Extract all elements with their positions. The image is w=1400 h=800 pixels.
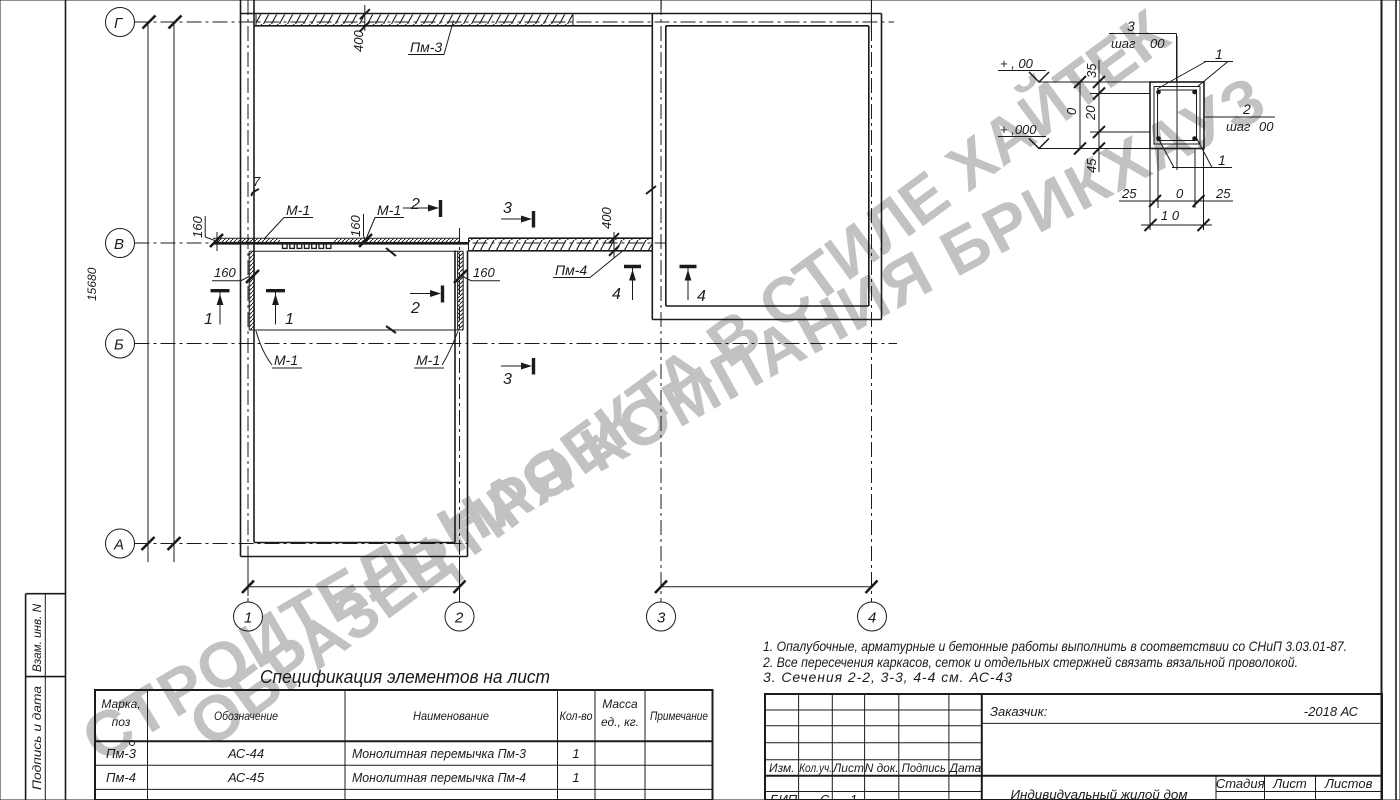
svg-text:Примечание: Примечание [650,709,708,723]
svg-text:Пм-3: Пм-3 [410,39,442,55]
svg-text:Кол.уч.: Кол.уч. [799,761,832,775]
svg-text:Стадия: Стадия [1216,776,1265,791]
svg-text:М-1: М-1 [274,352,298,368]
svg-text:160: 160 [348,215,363,237]
svg-text:4: 4 [868,610,876,627]
svg-text:400: 400 [351,30,366,52]
svg-text:Пм-3: Пм-3 [106,746,137,761]
svg-text:Наименование: Наименование [413,709,489,723]
svg-text:Монолитная перемычка Пм-3: Монолитная перемычка Пм-3 [352,746,527,761]
svg-text:0: 0 [1064,107,1079,115]
svg-text:Спецификация элементов на л: Спецификация элементов на лист [260,667,550,687]
svg-text:С: С [820,792,830,800]
svg-text:Лист: Лист [1272,776,1307,791]
svg-text:Г: Г [114,15,124,32]
svg-text:+ , 00: + , 00 [1000,56,1034,71]
svg-text:Кол-во: Кол-во [560,709,593,723]
svg-text:Монолитная перемычка Пм-4: Монолитная перемычка Пм-4 [352,770,526,785]
svg-text:В: В [114,236,124,253]
svg-text:-2018 АС: -2018 АС [1304,704,1359,719]
svg-text:1: 1 [850,792,857,800]
svg-text:25: 25 [1215,186,1231,201]
svg-text:Обозначение: Обозначение [214,709,278,723]
svg-text:Листов: Листов [1324,776,1373,791]
svg-text:Индивидуальный жилой дом: Индивидуальный жилой дом [1011,787,1188,800]
svg-text:Взам. инв. N: Взам. инв. N [30,604,44,672]
svg-text:Пм-4: Пм-4 [106,770,136,785]
svg-text:шаг: шаг [1226,119,1251,134]
svg-text:БИП: БИП [770,792,798,800]
svg-text:3: 3 [503,200,512,217]
svg-text:Пм-4: Пм-4 [555,262,587,278]
svg-text:Изм.: Изм. [769,761,795,775]
svg-text:1: 1 [1215,46,1223,62]
svg-text:Лист: Лист [832,761,864,775]
svg-text:3: 3 [1127,18,1135,34]
svg-text:25: 25 [1121,186,1137,201]
svg-text:Масса: Масса [602,697,638,711]
svg-text:3: 3 [503,371,512,388]
svg-text:2: 2 [410,196,420,213]
svg-text:Заказчик:: Заказчик: [990,704,1048,719]
svg-text:4: 4 [697,288,706,305]
svg-text:Подпись и дата: Подпись и дата [30,686,44,790]
svg-text:М-1: М-1 [416,352,440,368]
svg-text:Б: Б [114,337,124,354]
svg-text:160: 160 [190,216,205,238]
svg-text:+ ,000: + ,000 [1000,122,1037,137]
svg-text:160: 160 [473,265,495,280]
svg-text:М-1: М-1 [377,202,401,218]
svg-text:1: 1 [1218,152,1226,168]
svg-text:А: А [113,537,124,554]
svg-text:15680: 15680 [85,267,99,301]
svg-text:АС-44: АС-44 [227,746,264,761]
svg-text:00: 00 [1150,36,1165,51]
svg-text:00: 00 [1259,119,1274,134]
svg-text:400: 400 [599,207,614,229]
svg-text:Подпись: Подпись [902,761,946,775]
svg-text:1. Опалубочные, арматурные: 1. Опалубочные, арматурные и бетонные ра… [763,638,1347,654]
svg-text:Марка,: Марка, [101,697,140,711]
svg-text:35: 35 [1084,63,1099,78]
svg-text:3. Сечения 2-2, 3-3, 4-4: 3. Сечения 2-2, 3-3, 4-4 см. АС-43 [763,669,1012,685]
svg-text:45: 45 [1084,158,1099,173]
svg-text:0: 0 [1176,186,1184,201]
svg-text:1: 1 [285,311,294,328]
svg-text:М-1: М-1 [286,202,310,218]
svg-text:7: 7 [253,174,261,189]
svg-text:2: 2 [410,300,420,317]
svg-text:1: 1 [244,610,252,627]
svg-text:1: 1 [572,746,579,761]
svg-text:4: 4 [612,286,621,303]
svg-text:2. Все пересечения каркасов: 2. Все пересечения каркасов, сеток и отд… [762,654,1298,670]
svg-text:шаг: шаг [1111,36,1136,51]
svg-text:3: 3 [657,610,666,627]
svg-text:N док.: N док. [865,761,899,775]
svg-text:ед., кг.: ед., кг. [601,715,639,729]
svg-text:поз: поз [112,715,131,729]
svg-text:Дата: Дата [948,761,982,775]
svg-text:1 0: 1 0 [1161,208,1180,223]
svg-text:2: 2 [1242,101,1251,117]
svg-text:160: 160 [214,265,236,280]
svg-text:2: 2 [454,610,464,627]
svg-text:АС-45: АС-45 [227,770,265,785]
svg-text:1: 1 [204,311,213,328]
svg-text:20: 20 [1083,105,1098,121]
svg-text:1: 1 [572,770,579,785]
